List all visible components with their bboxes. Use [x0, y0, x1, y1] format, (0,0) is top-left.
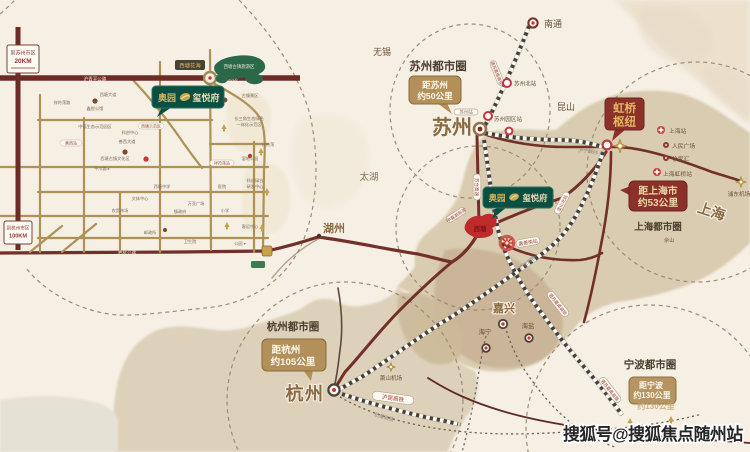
svg-text:沪青平公路: 沪青平公路 — [84, 76, 107, 83]
svg-text:奥园: 奥园 — [157, 92, 176, 103]
svg-text:小学: 小学 — [221, 207, 229, 214]
svg-text:鑫悦公馆: 鑫悦公馆 — [87, 105, 104, 112]
svg-text:科创中心: 科创中心 — [122, 129, 140, 136]
svg-text:中德生态示范园区: 中德生态示范园区 — [78, 123, 112, 130]
svg-text:嘉兴: 嘉兴 — [492, 301, 515, 315]
svg-text:杭州都市圈: 杭州都市圈 — [267, 320, 320, 333]
svg-text:无锡: 无锡 — [373, 47, 391, 57]
svg-text:西塘示范区: 西塘示范区 — [141, 123, 161, 129]
svg-text:G50: G50 — [258, 263, 265, 267]
svg-text:约50公里: 约50公里 — [417, 90, 453, 101]
svg-text:苏台高速: 苏台高速 — [473, 178, 480, 197]
svg-text:祥符荡: 祥符荡 — [262, 141, 275, 148]
svg-text:太湖: 太湖 — [359, 171, 378, 183]
svg-text:善西站: 善西站 — [65, 140, 77, 146]
svg-text:100KM: 100KM — [9, 234, 27, 240]
svg-text:西塘: 西塘 — [474, 224, 487, 233]
svg-text:苏州站: 苏州站 — [459, 109, 473, 116]
svg-text:苏州: 苏州 — [432, 116, 472, 139]
svg-text:祥符荡站: 祥符荡站 — [214, 160, 230, 166]
svg-text:玺悦府: 玺悦府 — [522, 193, 548, 203]
svg-text:古镇景区: 古镇景区 — [242, 92, 259, 99]
svg-text:祥符荡路: 祥符荡路 — [54, 99, 72, 106]
svg-text:科创绿谷: 科创绿谷 — [247, 177, 265, 184]
svg-text:人民广场: 人民广场 — [672, 142, 695, 150]
svg-text:虹桥: 虹桥 — [613, 101, 636, 115]
svg-text:西塘大道: 西塘大道 — [100, 91, 118, 98]
svg-text:到杭州市区: 到杭州市区 — [7, 225, 30, 232]
svg-text:距杭州: 距杭州 — [272, 344, 301, 356]
svg-text:海宁: 海宁 — [479, 327, 492, 336]
svg-text:苏州园区站: 苏州园区站 — [494, 115, 522, 123]
svg-text:约53公里: 约53公里 — [638, 196, 678, 209]
svg-text:约130公里: 约130公里 — [637, 401, 674, 411]
svg-text:长三角生态绿色: 长三角生态绿色 — [234, 115, 264, 122]
svg-text:西塘中学: 西塘中学 — [154, 183, 171, 190]
svg-text:苏州北站: 苏州北站 — [514, 80, 537, 88]
svg-text:文体中心: 文体中心 — [132, 195, 150, 202]
svg-text:上海虹桥站: 上海虹桥站 — [663, 170, 692, 178]
svg-text:研发中心: 研发中心 — [247, 183, 265, 190]
svg-text:邮政所: 邮政所 — [144, 229, 157, 236]
svg-text:搜狐号@搜狐焦点随州站: 搜狐号@搜狐焦点随州站 — [563, 424, 743, 444]
svg-text:湖州: 湖州 — [323, 221, 345, 235]
svg-text:奥园: 奥园 — [488, 193, 506, 203]
svg-text:昆山: 昆山 — [557, 102, 575, 112]
svg-text:平川路 ▸: 平川路 ▸ — [94, 165, 110, 172]
svg-text:镇政府: 镇政府 — [174, 208, 187, 215]
svg-text:宁波都市圈: 宁波都市圈 — [624, 358, 677, 371]
svg-text:沪杭公路: 沪杭公路 — [118, 250, 137, 257]
svg-text:农贸市场: 农贸市场 — [112, 207, 129, 214]
svg-text:约130公里: 约130公里 — [633, 390, 670, 400]
svg-text:南通: 南通 — [544, 18, 562, 29]
svg-text:徐家汇: 徐家汇 — [672, 155, 690, 163]
svg-text:卫生院: 卫生院 — [184, 238, 197, 245]
svg-text:到苏州市区: 到苏州市区 — [10, 50, 35, 57]
svg-text:客运中心: 客运中心 — [242, 223, 260, 230]
svg-text:距宁波: 距宁波 — [639, 380, 664, 390]
svg-text:距苏州: 距苏州 — [422, 79, 448, 90]
svg-text:万亚广场: 万亚广场 — [188, 200, 205, 207]
svg-text:枢纽: 枢纽 — [613, 115, 636, 129]
svg-text:杭州: 杭州 — [286, 383, 325, 404]
svg-text:西塘古镇旅游区: 西塘古镇旅游区 — [224, 63, 255, 70]
svg-text:浦东机场: 浦东机场 — [728, 190, 750, 198]
svg-text:一体化示范区: 一体化示范区 — [236, 121, 261, 128]
svg-text:佘山: 佘山 — [664, 236, 674, 244]
svg-text:上海都市圈: 上海都市圈 — [634, 221, 682, 233]
svg-text:距上海市: 距上海市 — [638, 184, 677, 197]
svg-text:萧山机场: 萧山机场 — [380, 374, 403, 382]
svg-text:约105公里: 约105公里 — [271, 356, 316, 368]
svg-text:医院: 医院 — [218, 183, 227, 190]
svg-text:西塘花海: 西塘花海 — [179, 62, 201, 70]
svg-text:苏州都市圈: 苏州都市圈 — [409, 59, 467, 73]
svg-text:上海站: 上海站 — [669, 127, 687, 135]
svg-text:善西大道: 善西大道 — [119, 138, 137, 145]
svg-text:20KM: 20KM — [14, 58, 31, 65]
svg-text:海盐: 海盐 — [522, 321, 535, 330]
svg-text:西塘古镇文化区: 西塘古镇文化区 — [100, 155, 129, 162]
svg-text:玺悦府: 玺悦府 — [192, 92, 219, 103]
